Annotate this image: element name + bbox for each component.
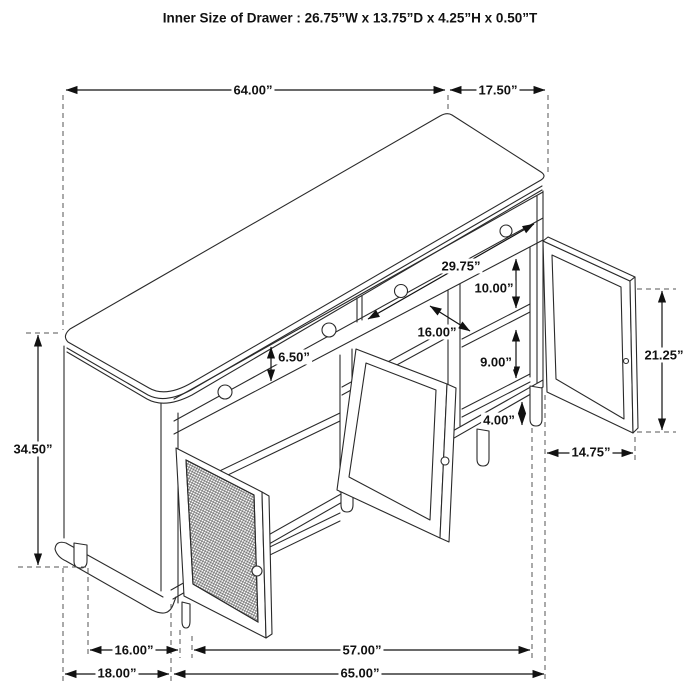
drawer-knob (500, 225, 512, 237)
dim-label-door-width: 14.75” (569, 445, 612, 460)
dim-label-leg-height: 4.00” (481, 413, 517, 428)
dim-label-overall-width: 65.00” (338, 666, 381, 681)
leg (182, 602, 190, 628)
leg (477, 429, 489, 466)
right-door (543, 237, 638, 433)
drawer-knob (218, 385, 232, 399)
right-shelf (462, 304, 530, 347)
dim-label-top-depth: 17.50” (476, 83, 519, 98)
dim-label-leg-spacing-side: 16.00” (112, 643, 155, 658)
dim-label-drawer-width: 29.75” (439, 259, 482, 274)
dim-label-door-height: 21.25” (642, 348, 685, 363)
dim-label-shelf-depth: 16.00” (415, 325, 458, 340)
middle-door (337, 349, 456, 542)
page-title: Inner Size of Drawer : 26.75”W x 13.75”D… (163, 11, 537, 26)
cabinet-drawing (55, 114, 638, 638)
dim-label-base-width: 57.00” (340, 643, 383, 658)
dim-label-top-width: 64.00” (231, 83, 274, 98)
cabinet-line-art (0, 0, 700, 700)
drawer-knob (322, 323, 336, 337)
cabinet-legs (74, 386, 542, 628)
door-knob (441, 457, 449, 465)
dim-label-overall-height: 34.50” (11, 442, 54, 457)
dim-label-lower-shelf-clearance: 9.00” (478, 355, 514, 370)
leg (74, 543, 87, 568)
door-knob (624, 359, 629, 364)
right-post (530, 191, 543, 387)
door-knob (252, 566, 262, 576)
dim-label-side-depth: 18.00” (95, 666, 138, 681)
dim-label-upper-shelf-clearance: 10.00” (472, 281, 515, 296)
right-floor (462, 374, 530, 417)
dim-label-drawer-front-height: 6.50” (276, 350, 312, 365)
drawer-knob (395, 285, 408, 298)
leg (530, 386, 542, 426)
diagram-canvas: Inner Size of Drawer : 26.75”W x 13.75”D… (0, 0, 700, 700)
